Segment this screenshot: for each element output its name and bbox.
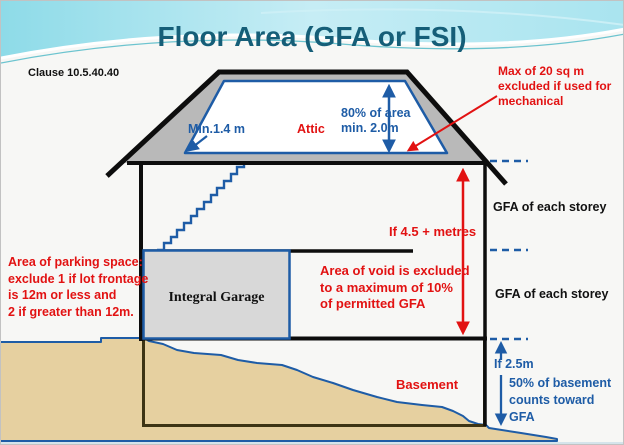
clause-reference: Clause 10.5.40.40 — [28, 67, 119, 80]
slide: Floor Area (GFA or FSI) Clause 10.5.40.4… — [0, 0, 624, 445]
gfa-lower-storey-label: GFA of each storey — [495, 287, 608, 302]
void-height-label: If 4.5 + metres — [389, 224, 476, 240]
basement-label: Basement — [396, 377, 458, 393]
basement-gfa-rule: 50% of basement counts toward GFA — [509, 375, 611, 426]
basement-depth-label: If 2.5m — [494, 357, 534, 372]
attic-label: Attic — [297, 122, 325, 137]
mechanical-exclusion-note: Max of 20 sq m excluded if used for mech… — [498, 64, 611, 109]
slide-title: Floor Area (GFA or FSI) — [1, 20, 623, 54]
attic-min-height-label: Min.1.4 m — [188, 122, 245, 137]
garage-label: Integral Garage — [143, 289, 290, 306]
storey-level-dash-marks — [490, 161, 528, 339]
attic-area-rule-label: 80% of area min. 2.0m — [341, 106, 410, 136]
gfa-upper-storey-label: GFA of each storey — [493, 200, 606, 215]
void-exclusion-note: Area of void is excluded to a maximum of… — [320, 263, 470, 313]
staircase-icon — [157, 161, 251, 250]
parking-exclusion-note: Area of parking space: exclude 1 if lot … — [8, 254, 148, 320]
